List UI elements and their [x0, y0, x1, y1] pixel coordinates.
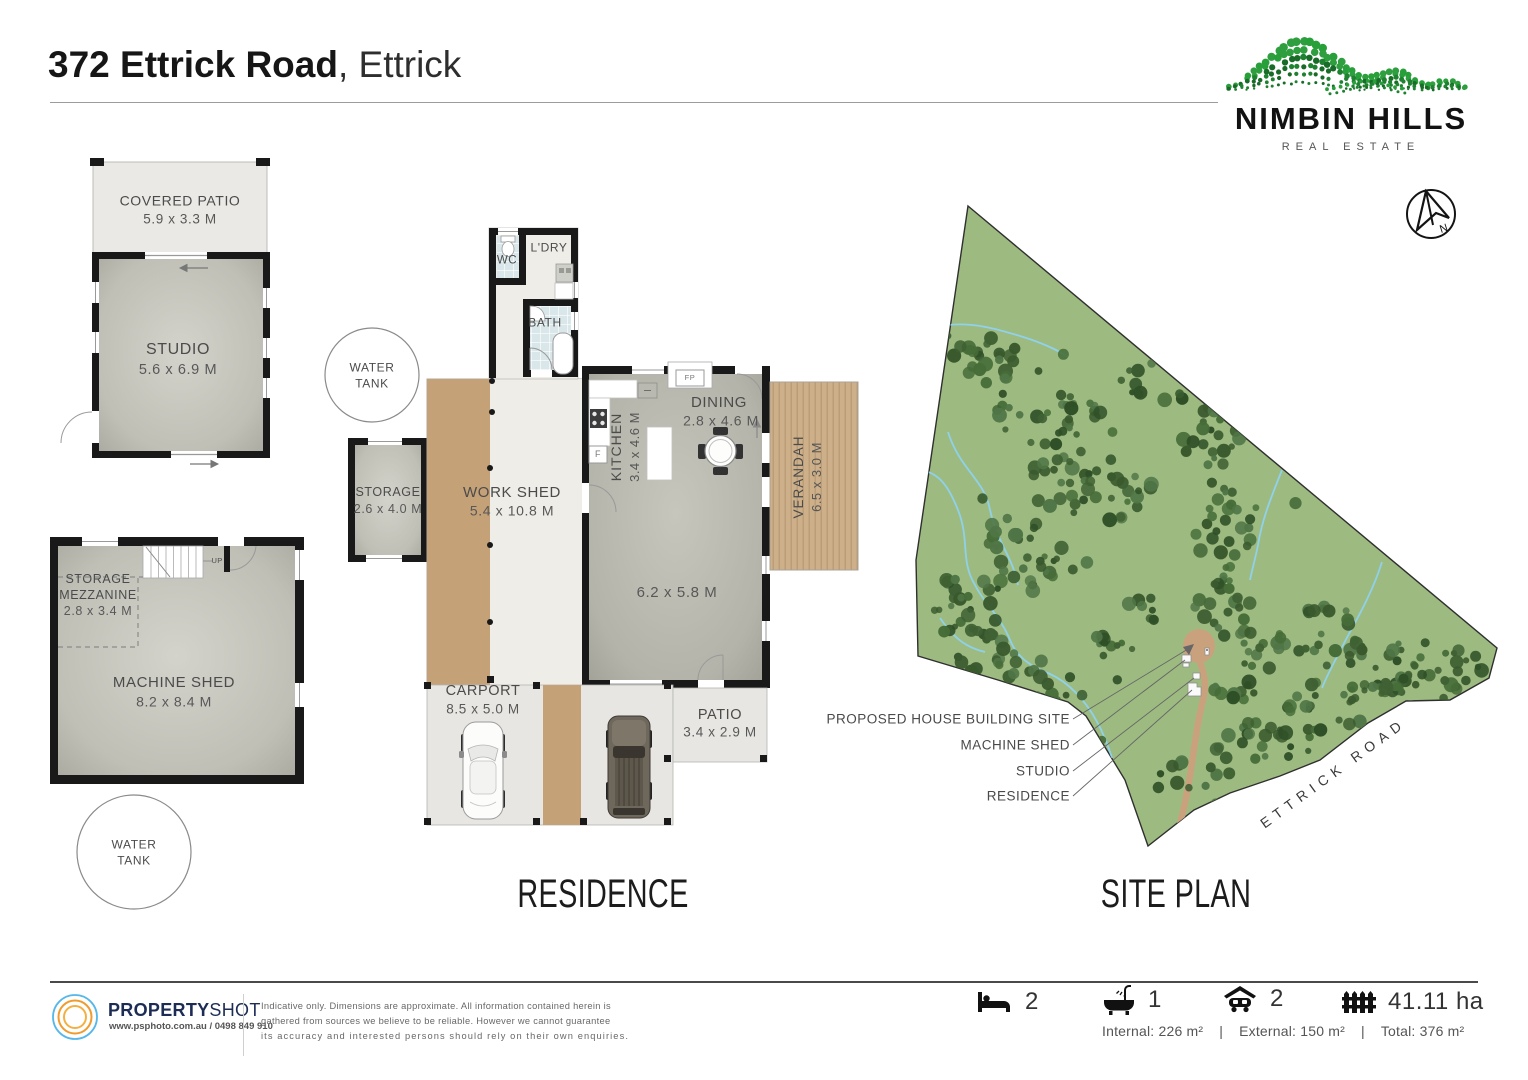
logo-dot: [1366, 79, 1370, 83]
tree: [1161, 361, 1168, 368]
tree: [1305, 748, 1311, 754]
tree: [1058, 349, 1069, 360]
logo-dot: [1363, 89, 1365, 91]
propertyshot-contact: www.psphoto.com.au / 0498 849 910: [109, 1021, 273, 1032]
tree: [1085, 476, 1095, 486]
tree: [1202, 782, 1210, 790]
tree: [1146, 594, 1155, 603]
tree: [991, 726, 1002, 737]
tree: [1090, 491, 1102, 503]
logo-dot: [1336, 63, 1343, 70]
storage-building: [348, 438, 428, 562]
tree: [1361, 687, 1367, 693]
tree: [967, 361, 978, 372]
car-icon: [459, 722, 507, 819]
logo-dot: [1335, 91, 1338, 94]
logo-dot: [1228, 87, 1231, 90]
tree: [1207, 478, 1217, 488]
logo-dot: [1397, 90, 1400, 93]
tree: [1027, 535, 1034, 542]
tree: [1068, 565, 1078, 575]
studio-dims: 5.6 x 6.9 M: [139, 363, 217, 379]
logo-dot: [1277, 83, 1280, 86]
logo-dot: [1283, 82, 1286, 85]
tree: [1118, 377, 1125, 384]
tree: [1222, 490, 1228, 496]
logo-dot: [1356, 86, 1359, 89]
logo-dot: [1264, 74, 1269, 79]
tree: [1255, 643, 1264, 652]
logo-dot: [1307, 82, 1310, 85]
logo-dot: [1349, 88, 1352, 91]
tree: [1207, 512, 1217, 522]
tree: [1076, 447, 1086, 457]
water-tank-lower: [77, 795, 191, 909]
logo-dot: [1450, 84, 1454, 88]
logo-dot: [1245, 79, 1250, 84]
tree: [1399, 674, 1409, 684]
logo-dot: [1363, 85, 1366, 88]
logo-dot: [1265, 80, 1269, 84]
tree: [1000, 373, 1010, 383]
logo-dot: [1326, 77, 1330, 81]
tree: [1026, 583, 1041, 598]
logo-dot: [1301, 81, 1304, 84]
propertyshot-logo-icon: [50, 992, 100, 1042]
logo-dot: [1271, 85, 1274, 88]
tree: [1412, 681, 1420, 689]
stove-icon: [590, 409, 607, 428]
tree: [1393, 682, 1402, 691]
tree: [1108, 495, 1115, 502]
logo-dot: [1322, 82, 1325, 85]
tree: [978, 357, 993, 372]
logo-dot: [1413, 87, 1416, 90]
tree: [1312, 692, 1319, 699]
tree: [1122, 597, 1136, 611]
storage-dims: 2.6 x 4.0 M: [354, 503, 422, 517]
logo-dot: [1346, 83, 1350, 87]
door-arc: [61, 412, 92, 443]
tree: [1287, 743, 1294, 750]
logo-dot: [1234, 88, 1237, 91]
separator: |: [1219, 1023, 1223, 1039]
tree: [1010, 656, 1022, 668]
tree: [1373, 665, 1379, 671]
logo-dot: [1339, 80, 1343, 84]
tree: [1057, 479, 1065, 487]
tree: [1035, 655, 1048, 668]
logo-dot: [1339, 85, 1343, 89]
tree: [1235, 628, 1246, 639]
tree: [1263, 661, 1276, 674]
work-shed: [427, 379, 583, 685]
tree: [1064, 401, 1078, 415]
fence-icon: [1342, 990, 1376, 1015]
logo-dot: [1400, 87, 1404, 91]
propertyshot-light: SHOT: [209, 1000, 260, 1020]
stat-baths: 1: [1102, 983, 1162, 1016]
tree: [957, 594, 965, 602]
living-dims: 6.2 x 5.8 M: [637, 585, 718, 602]
tree: [1452, 644, 1464, 656]
tree: [1250, 754, 1260, 764]
disclaimer-line-1: Indicative only. Dimensions are approxim…: [261, 999, 629, 1014]
tree: [1225, 562, 1235, 572]
logo-dot: [1432, 89, 1435, 92]
tree: [1329, 644, 1342, 657]
tree: [990, 541, 1004, 555]
tree: [1248, 662, 1256, 670]
work-shed-dims: 5.4 x 10.8 M: [470, 503, 554, 518]
tree: [983, 340, 991, 348]
logo-dot: [1252, 75, 1257, 80]
tree: [1043, 499, 1057, 513]
tree: [1058, 427, 1067, 436]
tree: [1323, 605, 1336, 618]
stat-cars: 2: [1222, 985, 1284, 1013]
tree: [955, 655, 969, 669]
logo-dot: [1380, 82, 1384, 86]
tree: [1092, 466, 1101, 475]
logo-dot: [1306, 55, 1312, 61]
logo-dot: [1262, 63, 1269, 70]
patio-dims: 3.4 x 2.9 M: [683, 726, 756, 741]
cars-count: 2: [1270, 985, 1284, 1013]
logo-dot: [1425, 86, 1428, 89]
logo-dot: [1269, 64, 1275, 70]
logo-dot: [1337, 69, 1343, 75]
logo-dot: [1451, 87, 1454, 90]
tree: [1323, 662, 1331, 670]
tree: [1081, 556, 1094, 569]
tree: [1224, 583, 1235, 594]
tree: [1467, 602, 1476, 611]
tree: [1257, 741, 1268, 752]
tree: [1242, 717, 1254, 729]
tree: [1284, 752, 1293, 761]
tree: [1223, 767, 1235, 779]
tree: [1131, 364, 1145, 378]
tree: [1065, 415, 1073, 423]
tree: [1054, 541, 1068, 555]
tree: [1289, 497, 1301, 509]
tree: [1050, 466, 1058, 474]
logo-dot: [1332, 86, 1336, 90]
tree: [1197, 609, 1212, 624]
carport-label: CARPORT: [446, 684, 521, 700]
tree: [1005, 404, 1012, 411]
tree: [1300, 700, 1313, 713]
logo-dot: [1462, 86, 1467, 91]
tree: [1253, 504, 1260, 511]
tree: [1229, 549, 1241, 561]
logo-dot: [1320, 75, 1324, 79]
tree: [1229, 443, 1235, 449]
studio-label: STUDIO: [146, 341, 210, 359]
logo-dot: [1294, 64, 1299, 69]
tree: [1016, 411, 1024, 419]
title-address: 372 Ettrick Road: [48, 44, 338, 85]
tree: [1070, 509, 1077, 516]
tree: [1214, 430, 1224, 440]
tree: [1208, 447, 1218, 457]
logo-dot: [1319, 66, 1324, 71]
tree: [1034, 691, 1042, 699]
tree: [1314, 641, 1323, 650]
tree: [995, 586, 1001, 592]
land-size: 41.11 ha: [1388, 988, 1484, 1016]
kitchen-bench: [589, 380, 637, 398]
tree: [1036, 562, 1046, 572]
floorplan-canvas: KITCHEN 3.4 x 4.6 M VERANDAH 6.5 x 3.0 M: [0, 0, 1528, 1080]
washer-icon: [555, 264, 573, 299]
logo-dot: [1266, 85, 1269, 88]
tree: [1044, 409, 1051, 416]
disclaimer-line-2: gathered from sources we believe to be r…: [261, 1014, 629, 1029]
logo-dot: [1326, 68, 1331, 73]
tree: [1343, 607, 1350, 614]
logo-dot: [1258, 78, 1262, 82]
brand-name: NIMBIN HILLS: [1235, 102, 1467, 136]
tree: [1191, 529, 1202, 540]
tree: [1126, 367, 1133, 374]
tree: [1238, 613, 1250, 625]
logo-dot: [1314, 81, 1317, 84]
fireplace-label: FP: [685, 374, 696, 382]
tree: [1227, 691, 1240, 704]
water-tank-upper-label2: TANK: [355, 377, 389, 390]
callout-proposed-site: PROPOSED HOUSE BUILDING SITE: [826, 712, 1070, 727]
tree: [1153, 782, 1164, 793]
logo-dot: [1329, 92, 1332, 95]
tree: [1131, 473, 1139, 481]
tree: [1185, 784, 1193, 792]
tree: [1235, 603, 1243, 611]
tree: [1108, 427, 1118, 437]
tree: [1133, 386, 1147, 400]
callout-residence: RESIDENCE: [987, 789, 1070, 804]
tree: [1340, 691, 1348, 699]
tree: [1292, 691, 1302, 701]
tree: [1423, 702, 1437, 716]
logo-dot: [1276, 69, 1281, 74]
tree: [1190, 602, 1200, 612]
tree: [1416, 653, 1424, 661]
water-tank-upper-label: WATER: [350, 361, 395, 374]
tree: [1285, 706, 1295, 716]
tree: [1019, 564, 1028, 573]
tree: [1221, 728, 1236, 743]
header-divider: [50, 102, 1218, 103]
tree: [1386, 643, 1400, 657]
machine-shed-label: MACHINE SHED: [113, 675, 235, 692]
logo-dot: [1292, 37, 1301, 46]
tree: [1091, 631, 1103, 643]
tree: [1411, 662, 1419, 670]
propertyshot-name: PROPERTYSHOT: [108, 1000, 261, 1021]
tree: [1198, 439, 1208, 449]
tree: [1220, 515, 1231, 526]
tree: [1235, 521, 1248, 534]
tree: [1224, 608, 1233, 617]
logo-dot: [1294, 72, 1298, 76]
tree: [1341, 613, 1354, 626]
tree: [1137, 601, 1147, 611]
tree: [931, 607, 938, 614]
logo-dot: [1256, 67, 1262, 73]
logo-dot: [1438, 87, 1441, 90]
suv-icon: [606, 716, 652, 818]
baths-count: 1: [1148, 986, 1162, 1014]
tree: [1040, 438, 1051, 449]
tree: [1066, 490, 1078, 502]
disclaimer-text: Indicative only. Dimensions are approxim…: [261, 999, 629, 1043]
tree: [1078, 263, 1086, 271]
tree: [1077, 690, 1088, 701]
tree: [1053, 556, 1060, 563]
carport-dims: 8.5 x 5.0 M: [446, 703, 519, 718]
logo-dot: [1359, 80, 1363, 84]
logo-dot: [1353, 87, 1355, 89]
logo-dot: [1345, 87, 1348, 90]
tree: [1114, 642, 1121, 649]
tree: [977, 575, 991, 589]
tree: [990, 526, 1002, 538]
tree: [1336, 717, 1343, 724]
logo-dot: [1308, 72, 1312, 76]
tree: [1210, 742, 1223, 755]
bath-label: BATH: [528, 316, 562, 329]
tree: [1470, 651, 1481, 662]
tree: [1042, 678, 1054, 690]
tree: [1066, 458, 1073, 465]
bath-icon: [1102, 983, 1136, 1016]
tree: [1453, 666, 1463, 676]
island-bench: [647, 427, 672, 480]
logo-dot: [1352, 81, 1356, 85]
tree: [1461, 676, 1471, 686]
logo-dot: [1393, 85, 1397, 89]
covered-patio-dims: 5.9 x 3.3 M: [143, 213, 216, 228]
tree: [1439, 694, 1448, 703]
callout-studio: STUDIO: [1016, 764, 1070, 779]
tree: [1079, 496, 1088, 505]
logo-dot: [1369, 84, 1372, 87]
tree: [993, 574, 1008, 589]
title-suburb: , Ettrick: [338, 44, 461, 85]
tree: [1067, 393, 1074, 400]
tree: [1008, 571, 1021, 584]
logo-dot: [1378, 89, 1380, 91]
tree: [1215, 624, 1223, 632]
logo-dot: [1264, 69, 1270, 75]
tree: [1243, 542, 1252, 551]
tree: [996, 642, 1010, 656]
tree: [1444, 494, 1455, 505]
verandah-dims: 6.5 x 3.0 M: [809, 442, 824, 512]
tree: [1196, 422, 1209, 435]
stat-beds: 2: [975, 988, 1039, 1016]
tree: [1241, 640, 1248, 647]
tree: [1404, 700, 1417, 713]
tree: [992, 408, 1007, 423]
footer-divider: [50, 981, 1478, 983]
tree: [1035, 367, 1043, 375]
floorplan-sheet: KITCHEN 3.4 x 4.6 M VERANDAH 6.5 x 3.0 M: [0, 0, 1528, 1080]
machine-shed-dims: 8.2 x 8.4 M: [136, 694, 212, 709]
tree: [1184, 445, 1191, 452]
tree: [983, 596, 998, 611]
logo-dot: [1312, 65, 1317, 70]
logo-dot: [1288, 72, 1292, 76]
logo-dot: [1311, 48, 1319, 56]
tree: [981, 377, 992, 388]
logo-dot: [1295, 80, 1298, 83]
tree: [1206, 762, 1216, 772]
tree: [1147, 359, 1156, 368]
tree: [1278, 725, 1293, 740]
tree: [1113, 675, 1122, 684]
tree: [999, 390, 1007, 398]
logo-dot: [1253, 87, 1255, 89]
logo-dot: [1394, 75, 1399, 80]
tree: [1211, 580, 1219, 588]
tree: [1309, 609, 1316, 616]
tree: [1217, 458, 1228, 469]
tree: [995, 355, 1004, 364]
tree: [1440, 676, 1449, 685]
logo-dot: [1325, 87, 1329, 91]
tree: [1347, 682, 1358, 693]
tree: [961, 608, 975, 622]
tree: [1463, 657, 1469, 663]
propertyshot-bold: PROPERTY: [108, 1000, 209, 1020]
dining-label: DINING: [691, 395, 747, 412]
tree: [1063, 692, 1070, 699]
water-tank-lower-label: WATER: [112, 838, 157, 851]
bathtub-icon: [553, 333, 573, 374]
tree: [973, 626, 983, 636]
tree: [1343, 718, 1356, 731]
tree: [1212, 683, 1218, 689]
logo-dot: [1458, 88, 1461, 91]
tree: [1030, 524, 1038, 532]
tree: [1027, 439, 1034, 446]
logo-dot: [1330, 59, 1337, 66]
water-tank-upper: [325, 328, 419, 422]
logo-dot: [1446, 87, 1449, 90]
tree: [1182, 369, 1192, 379]
logo-dot: [1365, 86, 1368, 89]
garage-icon: [1222, 985, 1258, 1013]
logo-dot: [1279, 43, 1288, 52]
tree: [1243, 596, 1256, 609]
logo-dot: [1282, 66, 1287, 71]
tree: [1009, 343, 1020, 354]
tree: [1129, 646, 1135, 652]
logo-dot: [1408, 82, 1412, 86]
tree: [1348, 696, 1356, 704]
logo-dot: [1376, 85, 1379, 88]
brand-hills-logo: [1226, 37, 1468, 95]
logo-dot: [1301, 64, 1306, 69]
door-leaf: [224, 546, 230, 572]
tree: [1149, 615, 1159, 625]
logo-dot: [1286, 49, 1294, 57]
tree: [984, 628, 997, 641]
tree: [1224, 536, 1235, 547]
